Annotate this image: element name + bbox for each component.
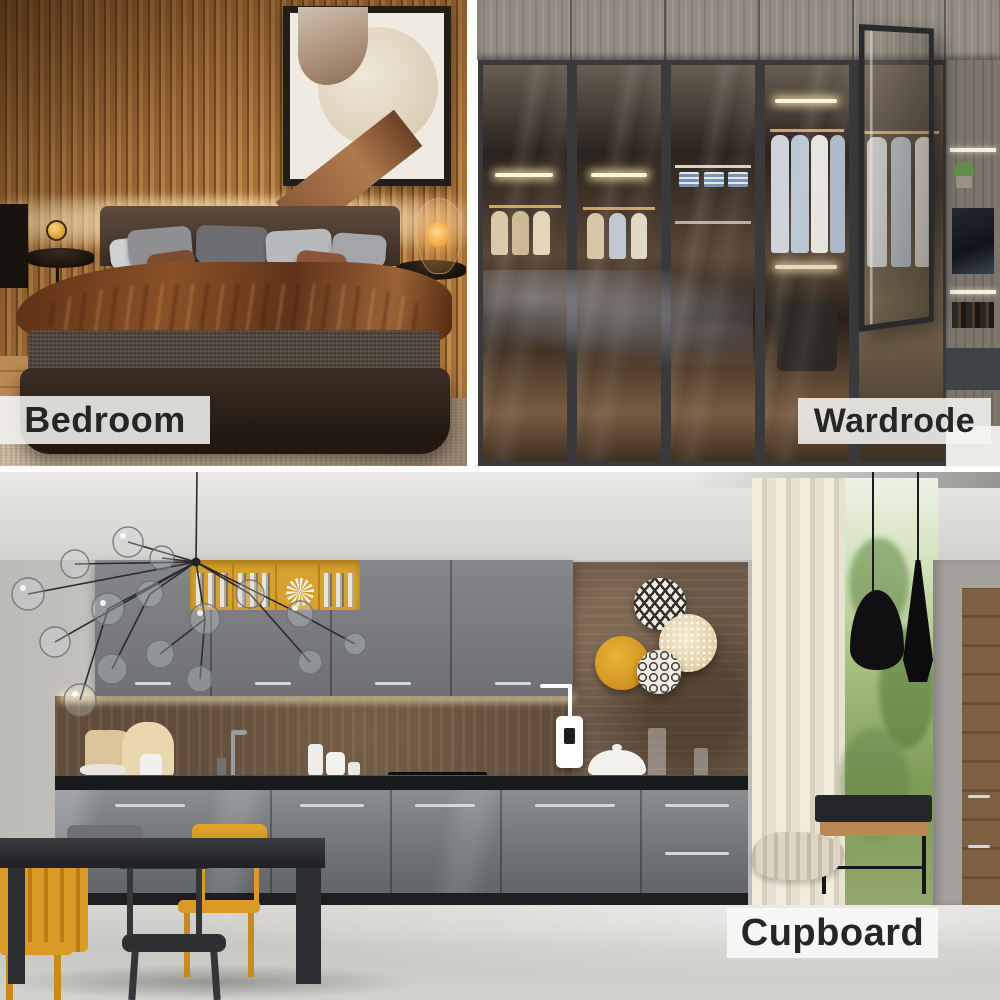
- collage: Bedroom: [0, 0, 1000, 1000]
- nightstand-left: [26, 248, 94, 268]
- glass-door: [478, 60, 572, 466]
- bedroom-photo: Bedroom: [0, 0, 467, 466]
- vertical-divider: [467, 0, 477, 466]
- bed-reflection: [483, 270, 753, 366]
- wardrobe-label: Wardrode: [798, 398, 991, 444]
- cable: [540, 684, 572, 688]
- bubble-chandelier: [0, 472, 400, 732]
- bench-wood-rail: [820, 822, 927, 836]
- sensor-switch: [556, 716, 583, 768]
- vase: [348, 762, 360, 776]
- honeycomb-plate: [637, 650, 681, 694]
- lamp-bulb: [427, 222, 449, 248]
- yellow-chair-left-leg: [54, 955, 61, 1000]
- glass-door: [666, 60, 760, 466]
- curtain-pool: [752, 832, 844, 880]
- cupboard-label: Cupboard: [727, 908, 938, 958]
- console-block: [0, 204, 28, 288]
- bottles: [952, 302, 994, 328]
- bench: [815, 795, 932, 822]
- pillow: [195, 225, 268, 265]
- wood-cabinet-right: [962, 588, 1000, 905]
- pendant-cord: [917, 472, 919, 564]
- vase: [326, 752, 345, 776]
- horizontal-divider: [0, 466, 1000, 472]
- plinth: [55, 893, 748, 905]
- table-leg: [296, 868, 321, 984]
- countertop: [55, 775, 748, 790]
- pendant-cord: [872, 472, 874, 592]
- teapot: [588, 750, 646, 778]
- white-jar: [140, 754, 162, 776]
- dining-table: [0, 838, 325, 868]
- cable: [568, 686, 572, 718]
- teapot-lid: [612, 744, 622, 751]
- glass-door: [572, 60, 666, 466]
- dark-chair-post: [127, 868, 133, 936]
- cupboard-photo: Cupboard: [0, 472, 1000, 1000]
- glass-vase: [648, 728, 666, 776]
- yellow-chair-leg: [248, 913, 254, 977]
- glass-cup: [694, 748, 708, 776]
- grinder: [217, 758, 226, 776]
- alarm-clock: [46, 220, 67, 241]
- yellow-chair-seat: [178, 900, 260, 913]
- dark-chair-seat: [122, 934, 226, 952]
- wall-art: [283, 6, 451, 186]
- table-leg: [8, 868, 25, 984]
- bedroom-label: Bedroom: [0, 396, 210, 444]
- vase: [308, 744, 323, 776]
- faucet-spout: [231, 730, 247, 735]
- faucet: [231, 734, 235, 776]
- open-glass-door: [859, 24, 934, 332]
- wardrobe-photo: Wardrode: [477, 0, 1000, 466]
- dark-chair-post: [196, 868, 202, 936]
- floor-shadow: [0, 964, 420, 1000]
- small-art: [952, 208, 994, 274]
